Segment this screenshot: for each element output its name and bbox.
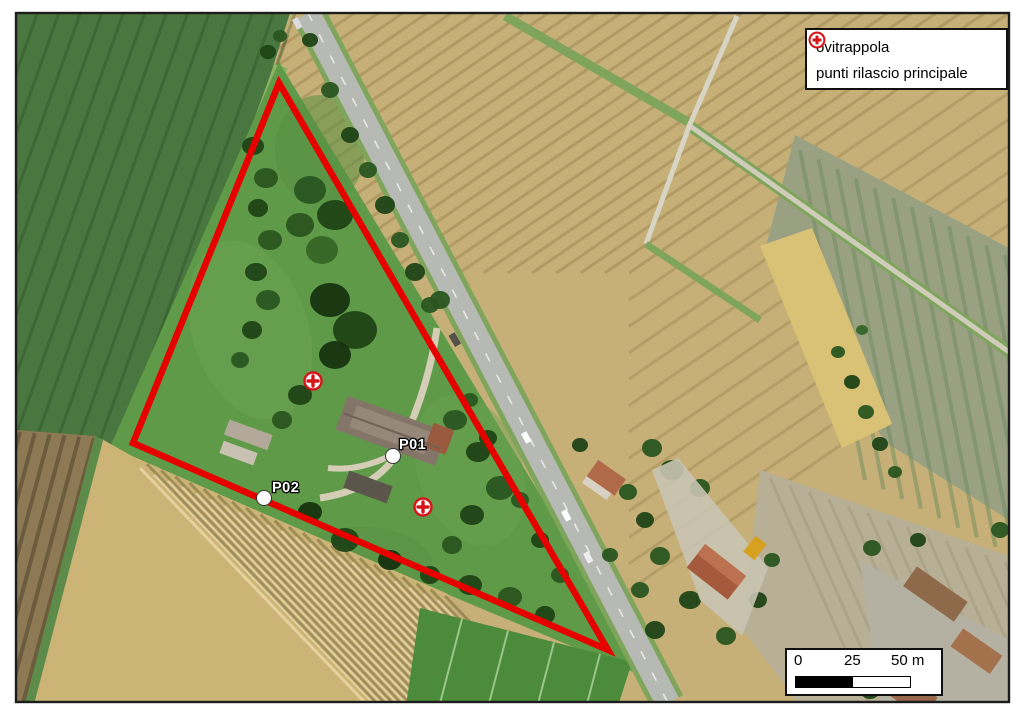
map-figure: P01 P02 ovitrappola punti rilascio princ… bbox=[0, 0, 1024, 724]
legend: ovitrappola punti rilascio principale bbox=[805, 28, 1008, 90]
scale-bar-rule bbox=[795, 676, 911, 688]
legend-label: ovitrappola bbox=[816, 39, 889, 56]
red-cross-circle-icon bbox=[807, 30, 827, 50]
scale-tick-50m: 50 m bbox=[891, 652, 924, 669]
ovitrap-label: P01 bbox=[399, 437, 426, 453]
aerial-map: P01 P02 bbox=[0, 0, 1024, 724]
ovitrap-label: P02 bbox=[272, 480, 299, 496]
scale-bar: 0 25 50 m bbox=[785, 648, 943, 696]
scale-bar-filled-half bbox=[796, 677, 853, 687]
scale-tick-0: 0 bbox=[794, 652, 802, 669]
scale-tick-25: 25 bbox=[844, 652, 861, 669]
release-point-marker bbox=[415, 499, 432, 516]
legend-row-release-points: punti rilascio principale bbox=[816, 60, 997, 86]
legend-label: punti rilascio principale bbox=[816, 65, 968, 82]
release-point-marker bbox=[305, 373, 322, 390]
legend-row-ovitrappola: ovitrappola bbox=[816, 34, 997, 60]
